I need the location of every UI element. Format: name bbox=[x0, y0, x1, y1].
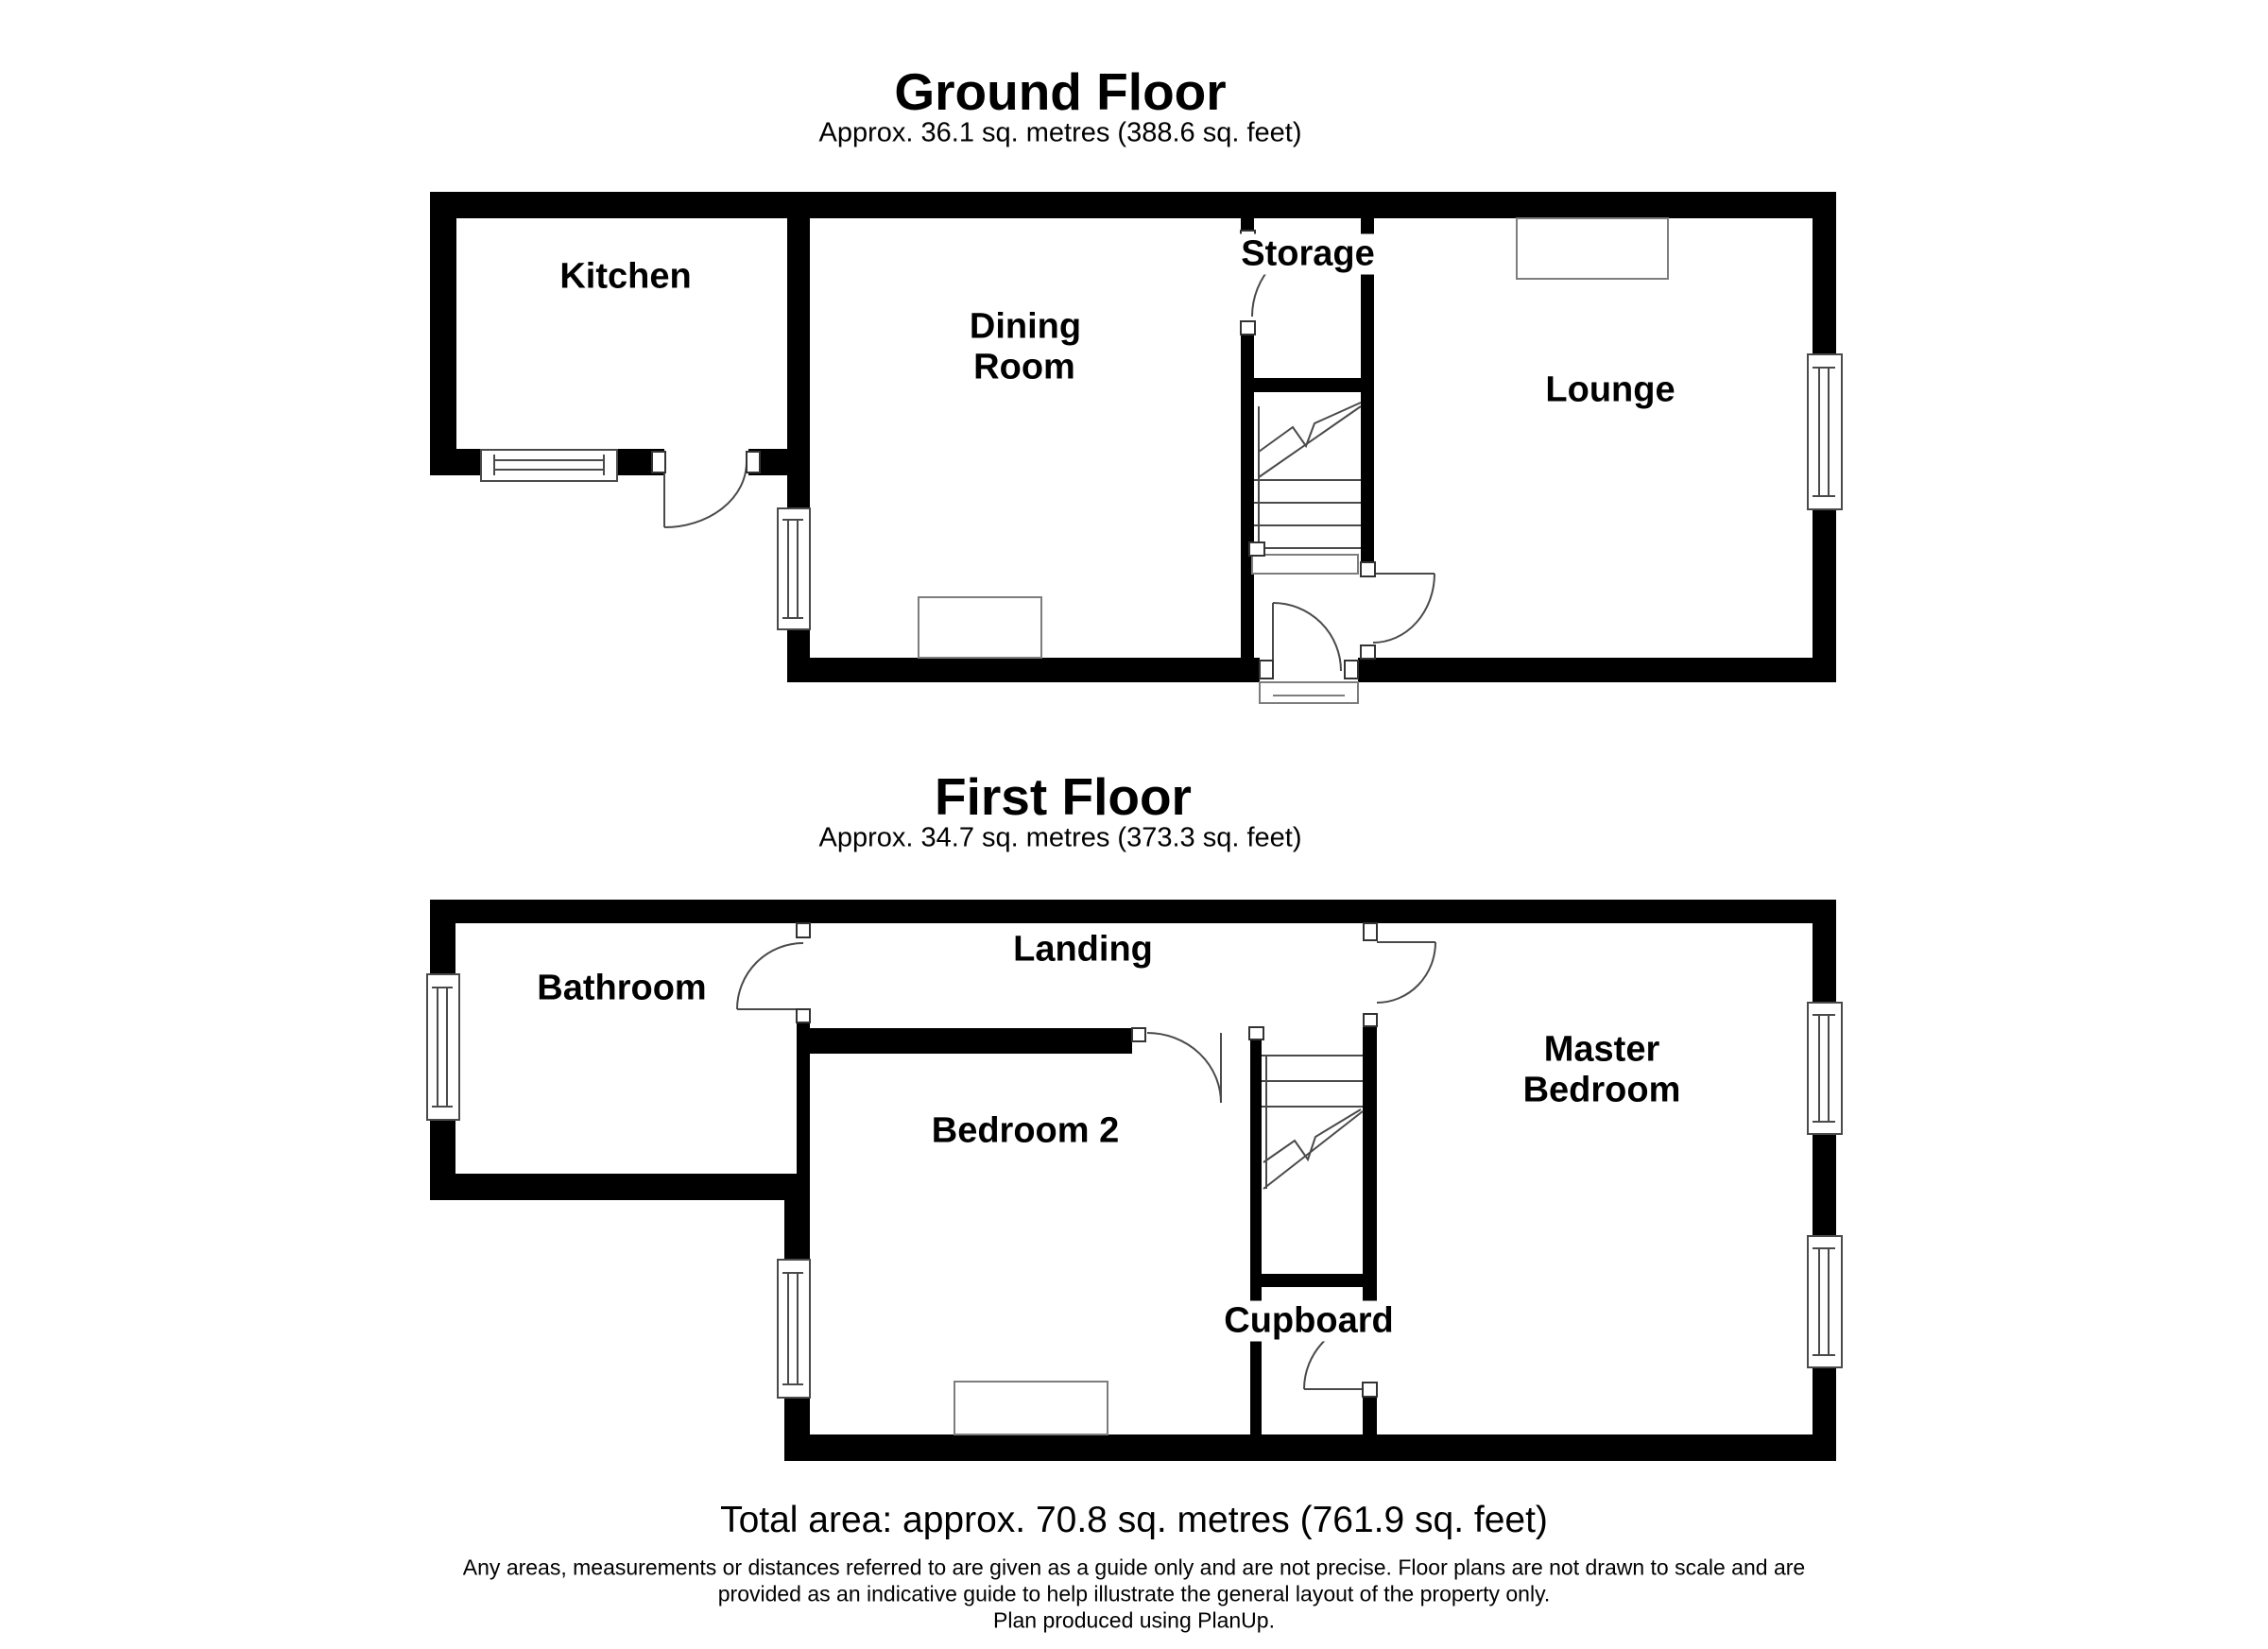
ground-floor-subtitle: Approx. 36.1 sq. metres (388.6 sq. feet) bbox=[819, 118, 1302, 149]
ff-landing-divider-wall bbox=[810, 1028, 1132, 1054]
stair-break-zigzag bbox=[1259, 403, 1361, 452]
stair-break-zigzag bbox=[1263, 1109, 1361, 1162]
ff-bottom-wall bbox=[784, 1434, 1836, 1461]
ff-master-left-wall bbox=[1363, 1026, 1377, 1315]
gf-staircase bbox=[1252, 403, 1361, 574]
lounge-window bbox=[1808, 354, 1842, 509]
bathroom-door bbox=[737, 943, 803, 1009]
bathroom-window bbox=[427, 974, 459, 1120]
ff-bathroom-bottom-wall bbox=[430, 1174, 810, 1200]
room-label-landing: Landing bbox=[1013, 930, 1153, 971]
front-door bbox=[1273, 603, 1341, 671]
room-label-master-line1: Master bbox=[1544, 1030, 1660, 1071]
bedroom2-door bbox=[1147, 1033, 1221, 1103]
ff-right-wall bbox=[1813, 900, 1836, 1005]
first-floor-title: First Floor bbox=[935, 766, 1192, 827]
gf-storage-divider-wall bbox=[1241, 378, 1373, 392]
bedroom2-bed bbox=[954, 1382, 1108, 1434]
front-door-step bbox=[1260, 682, 1358, 703]
disclaimer-line2: provided as an indicative guide to help … bbox=[718, 1582, 1551, 1607]
room-label-master-line2: Bedroom bbox=[1523, 1071, 1681, 1111]
gf-kitchen-dining-wall bbox=[787, 218, 810, 510]
gf-fixtures bbox=[919, 218, 1668, 703]
ff-cupboard-divider-wall bbox=[1262, 1274, 1377, 1287]
gf-bottom-wall bbox=[1358, 658, 1836, 682]
ff-bathroom-right-wall bbox=[797, 1022, 810, 1174]
ff-right-wall bbox=[1813, 1132, 1836, 1238]
first-floor-subtitle: Approx. 34.7 sq. metres (373.3 sq. feet) bbox=[819, 823, 1302, 854]
disclaimer-line3: Plan produced using PlanUp. bbox=[993, 1608, 1275, 1634]
gf-kitchen-dining-wall bbox=[787, 628, 810, 658]
room-label-kitchen: Kitchen bbox=[559, 257, 691, 298]
dining-room-window bbox=[778, 508, 810, 629]
master-bedroom-window-lower bbox=[1808, 1236, 1842, 1367]
gf-top-wall bbox=[430, 192, 1836, 218]
disclaimer-line1: Any areas, measurements or distances ref… bbox=[463, 1555, 1805, 1581]
total-area-text: Total area: approx. 70.8 sq. metres (761… bbox=[720, 1500, 1548, 1541]
stair-break-line bbox=[1263, 1111, 1363, 1189]
gf-left-wall bbox=[430, 192, 456, 475]
ground-floor-title: Ground Floor bbox=[894, 61, 1226, 122]
gf-right-wall bbox=[1813, 192, 1836, 356]
room-label-storage: Storage bbox=[1236, 234, 1379, 275]
ff-master-left-wall bbox=[1363, 1397, 1377, 1434]
room-label-bedroom2: Bedroom 2 bbox=[932, 1111, 1119, 1152]
lounge-door bbox=[1373, 574, 1435, 643]
kitchen-side-door bbox=[664, 462, 747, 527]
dining-table bbox=[919, 597, 1041, 658]
gf-bottom-wall bbox=[787, 658, 1260, 682]
kitchen-window bbox=[481, 450, 617, 481]
stair-bottom-landing bbox=[1252, 555, 1358, 574]
ff-right-wall bbox=[1813, 1366, 1836, 1461]
room-label-bathroom: Bathroom bbox=[537, 969, 706, 1009]
lounge-chimney-breast bbox=[1517, 218, 1668, 279]
ff-stair-left-wall bbox=[1250, 1039, 1262, 1434]
ff-bedroom2-left-wall bbox=[784, 1200, 810, 1262]
master-bedroom-window-upper bbox=[1808, 1003, 1842, 1134]
room-label-cupboard: Cupboard bbox=[1219, 1301, 1398, 1342]
ff-top-wall bbox=[430, 900, 1836, 923]
bedroom2-window bbox=[778, 1260, 810, 1398]
gf-kitchen-bottom-wall bbox=[430, 449, 489, 475]
gf-right-wall bbox=[1813, 508, 1836, 682]
ff-fixtures bbox=[954, 1382, 1108, 1434]
floorplan-page: Ground Floor Approx. 36.1 sq. metres (38… bbox=[0, 0, 2268, 1649]
room-label-lounge: Lounge bbox=[1545, 370, 1675, 411]
room-label-dining-line2: Room bbox=[973, 348, 1075, 388]
ff-staircase bbox=[1262, 1056, 1363, 1189]
room-label-dining-line1: Dining bbox=[970, 307, 1081, 348]
master-bedroom-door bbox=[1377, 942, 1435, 1003]
